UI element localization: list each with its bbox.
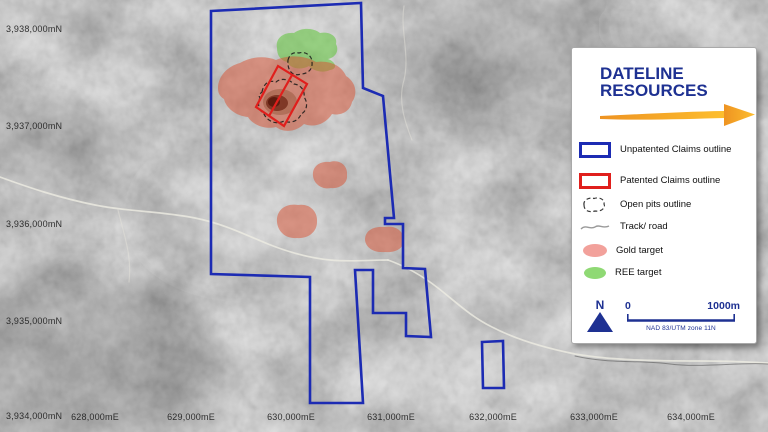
legend-item-open-pits: Open pits outline bbox=[579, 196, 691, 213]
easting-label: 634,000mE bbox=[667, 412, 715, 422]
legend-item-unpatented-claims: Unpatented Claims outline bbox=[579, 141, 731, 158]
scale-end-label: 1000m bbox=[707, 300, 740, 312]
northing-label: 3,936,000mN bbox=[6, 219, 62, 229]
easting-label: 631,000mE bbox=[367, 412, 415, 422]
brand-logo: DATELINE RESOURCES bbox=[600, 65, 708, 99]
legend-item-track-road: Track/ road bbox=[579, 218, 668, 235]
track-road-icon bbox=[579, 220, 611, 234]
map-figure: 3,938,000mN 3,937,000mN 3,936,000mN 3,93… bbox=[0, 0, 768, 432]
easting-label: 629,000mE bbox=[167, 412, 215, 422]
legend-item-label: Unpatented Claims outline bbox=[620, 144, 731, 155]
unpatented-claims-icon bbox=[579, 142, 611, 158]
legend-item-label: REE target bbox=[615, 267, 661, 278]
easting-label: 630,000mE bbox=[267, 412, 315, 422]
unpatented-claims-outline-east bbox=[482, 341, 504, 388]
northing-label: 3,934,000mN bbox=[6, 411, 62, 421]
brand-line2: RESOURCES bbox=[600, 82, 708, 99]
gold-target-area-mid bbox=[313, 161, 347, 188]
legend-item-label: Open pits outline bbox=[620, 199, 691, 210]
legend-item-label: Gold target bbox=[616, 245, 663, 256]
gold-target-area-west bbox=[277, 205, 317, 238]
datum-label: NAD 83/UTM zone 11N bbox=[622, 325, 740, 332]
open-pits-icon bbox=[579, 195, 611, 215]
legend-item-patented-claims: Patented Claims outline bbox=[579, 172, 720, 189]
north-arrow-icon bbox=[587, 312, 613, 332]
north-arrow: N bbox=[587, 298, 613, 337]
northing-label: 3,935,000mN bbox=[6, 316, 62, 326]
scale-start-label: 0 bbox=[625, 300, 631, 312]
legend-panel: DATELINE RESOURCES Unpatented Claims out… bbox=[571, 47, 757, 344]
legend-item-label: Patented Claims outline bbox=[620, 175, 720, 186]
northing-label: 3,938,000mN bbox=[6, 24, 62, 34]
scale-bar: 0 1000m NAD 83/UTM zone 11N bbox=[622, 300, 740, 340]
gold-target-icon bbox=[583, 244, 607, 257]
brand-arrow-icon bbox=[598, 99, 756, 129]
patented-claims-icon bbox=[579, 173, 611, 189]
northing-label: 3,937,000mN bbox=[6, 121, 62, 131]
legend-item-gold-target: Gold target bbox=[579, 242, 663, 259]
brand-line1: DATELINE bbox=[600, 65, 708, 82]
easting-label: 628,000mE bbox=[71, 412, 119, 422]
scale-bar-line bbox=[622, 313, 740, 322]
easting-label: 632,000mE bbox=[469, 412, 517, 422]
ree-target-icon bbox=[584, 267, 606, 279]
gold-target-area-east bbox=[365, 227, 404, 252]
easting-label: 633,000mE bbox=[570, 412, 618, 422]
legend-item-label: Track/ road bbox=[620, 221, 668, 232]
north-label: N bbox=[587, 298, 613, 312]
legend-item-ree-target: REE target bbox=[579, 264, 661, 281]
